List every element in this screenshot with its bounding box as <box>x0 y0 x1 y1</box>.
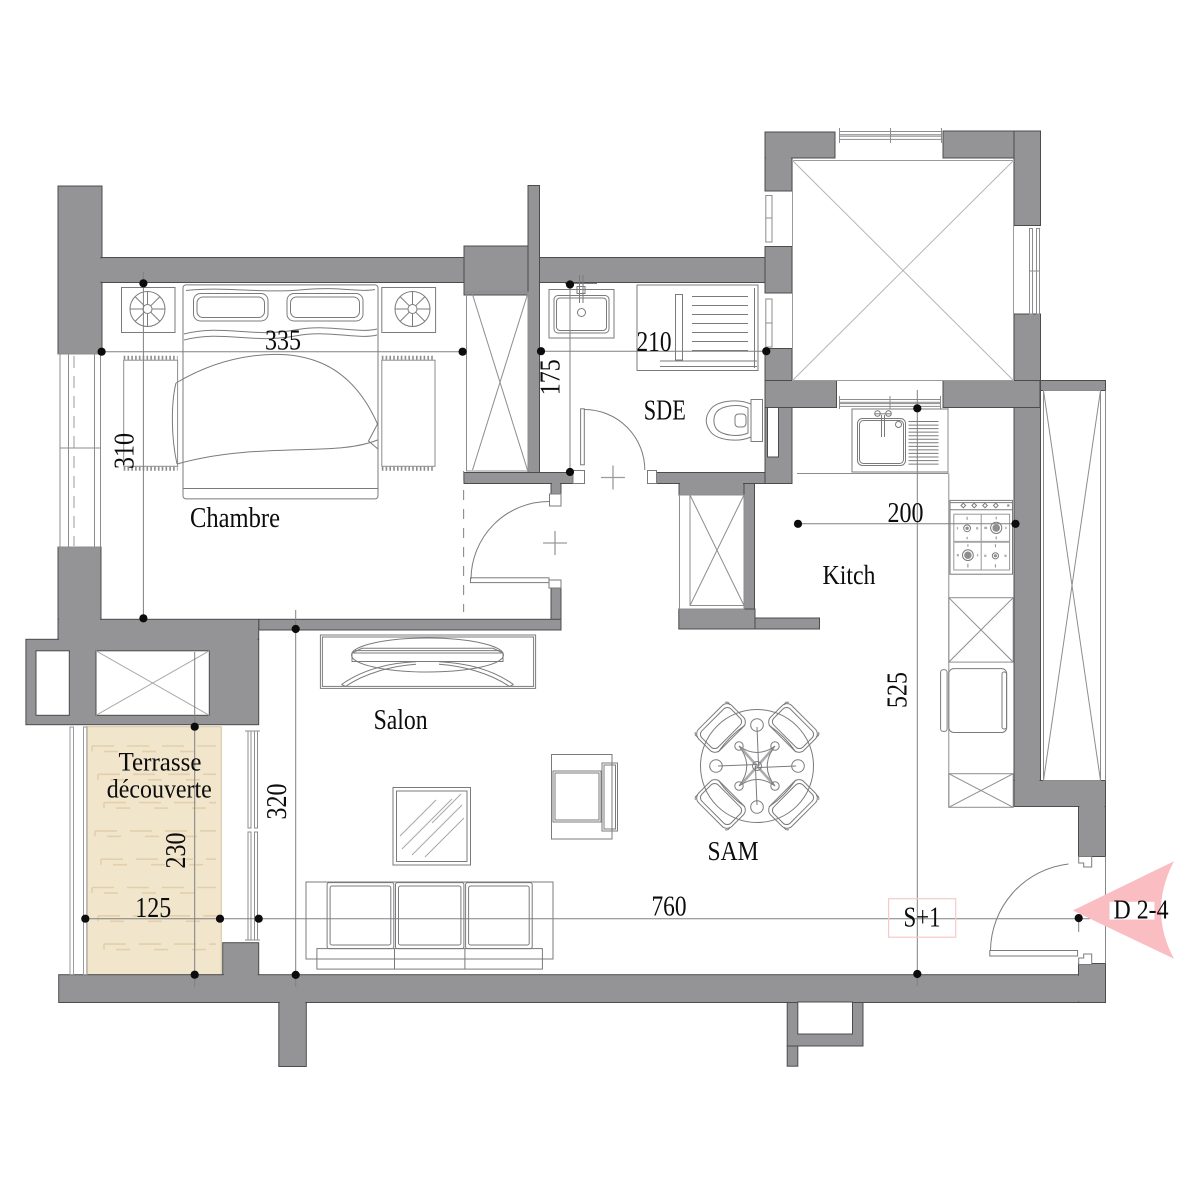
svg-text:S+1: S+1 <box>904 903 941 934</box>
svg-text:335: 335 <box>265 326 301 357</box>
svg-text:SDE: SDE <box>644 396 686 427</box>
svg-text:SAM: SAM <box>708 836 759 866</box>
svg-text:310: 310 <box>110 433 141 469</box>
svg-text:Salon: Salon <box>374 705 428 736</box>
svg-text:760: 760 <box>652 892 687 923</box>
svg-text:découverte: découverte <box>107 775 212 804</box>
svg-text:230: 230 <box>161 833 192 869</box>
svg-text:200: 200 <box>888 498 924 529</box>
svg-text:Kitch: Kitch <box>823 560 876 590</box>
svg-text:125: 125 <box>135 893 171 924</box>
svg-text:Chambre: Chambre <box>190 502 280 534</box>
svg-text:Terrasse: Terrasse <box>119 748 202 777</box>
svg-text:175: 175 <box>536 359 567 395</box>
svg-text:D 2-4: D 2-4 <box>1114 895 1169 925</box>
svg-text:320: 320 <box>262 784 293 820</box>
svg-text:210: 210 <box>637 327 672 358</box>
svg-text:525: 525 <box>883 672 914 708</box>
